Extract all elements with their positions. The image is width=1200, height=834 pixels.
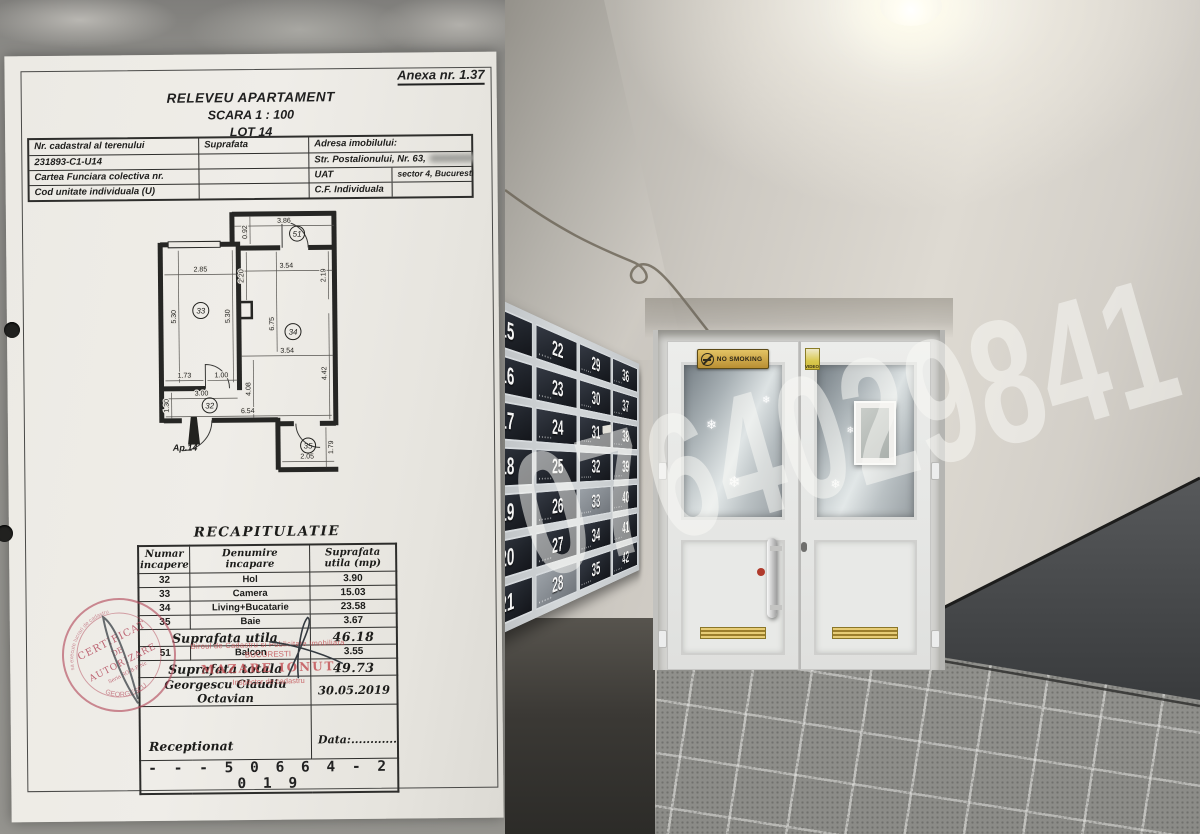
entrance-door: ❄ ❄ ❄ NO SMOKING ❄ ❄ VIDEO [653,330,945,670]
room-number-34: 34 [288,328,298,337]
document-scan: Anexa nr. 1.37 RELEVEU APARTAMENT SCARA … [0,0,505,834]
svg-text:5.30: 5.30 [225,309,232,323]
recap-header-area: Suprafatautila (mp) [310,544,397,572]
svg-text:3.54: 3.54 [280,263,294,270]
cod-unitate-label: Cod unitate individuala (U) [30,185,200,201]
room-number-35: 35 [304,441,314,450]
door-hinge [658,630,667,648]
svg-text:6.54: 6.54 [241,408,255,415]
wall-base-shadow [505,618,655,834]
svg-text:3.86: 3.86 [277,218,291,225]
uat-value: sector 4, Bucuresti [391,167,473,182]
window-symbol [168,241,220,247]
document-titles: RELEVEU APARTAMENT SCARA 1 : 100 LOT 14 [5,88,497,142]
door-handle [767,538,777,618]
door-glass-right: ❄ ❄ [814,362,918,520]
redacted-address [430,154,474,163]
door-hinge [931,630,940,648]
carte-funciara-label: Cartea Funciara colectiva nr. [29,170,199,186]
room-number-33: 33 [196,306,206,315]
svg-text:4.08: 4.08 [245,382,252,396]
snowflake-decal: ❄ [847,425,855,436]
surface-value [199,153,309,168]
mailbox-25: 25 [536,449,577,485]
mailbox-38: 38 [613,421,638,450]
recap-header-number: Numarincapere [138,546,190,574]
mailbox-35: 35 [579,550,610,592]
door-panel-right [814,540,918,655]
room-number-51: 51 [293,230,302,239]
address-value: Str. Postalionului, Nr. 63, [309,152,473,168]
address-label: Adresa imobilului: [309,136,473,153]
red-dot-sticker [757,568,765,576]
svg-text:2.19: 2.19 [320,268,327,282]
cf-label: C.F. Individuala [310,183,392,198]
mailbox-31: 31 [579,415,610,448]
mailbox-33: 33 [579,485,610,518]
door-hinge [931,462,940,480]
mailbox-42: 42 [613,541,638,577]
snowflake-decal: ❄ [728,473,741,491]
cadastral-label: Nr. cadastral al terenului [29,139,199,156]
mailbox-17: 17 [505,396,533,443]
mailbox-40: 40 [613,483,638,512]
snowflake-decal: ❄ [706,417,717,433]
svg-text:2.20: 2.20 [238,269,245,283]
vent-grille [700,627,766,639]
surface-label: Suprafata [199,137,309,153]
received-label: Receptionat [149,738,234,754]
mailbox-36: 36 [613,357,638,393]
date-label: Data:............ [311,704,398,759]
recap-title: RECAPITULATIE [137,523,397,541]
entrance-door-symbol [188,417,200,445]
door-leaf-left: ❄ ❄ ❄ NO SMOKING [667,341,799,670]
room-number-32: 32 [205,401,215,410]
mailbox-30: 30 [579,379,610,417]
svg-text:1.30: 1.30 [164,399,171,413]
property-info-table: Nr. cadastral al terenului Suprafata Adr… [27,134,474,202]
mail-flyer [602,425,611,435]
document-scale: SCARA 1 : 100 [5,106,497,125]
svg-text:5.30: 5.30 [171,310,178,324]
uat-label: UAT [309,168,391,183]
mailbox-24: 24 [536,407,577,446]
floor-plan: 3.86 0.92 2.85 5.30 5.30 3.54 2.20 2.19 … [134,203,389,505]
registration-row: - - - 5 0 6 6 4 - 2 0 1 9 [140,758,398,794]
vent-grille [832,627,898,639]
hole-punch-top [4,322,20,338]
door-hinge [658,462,667,480]
svg-text:1.00: 1.00 [215,372,229,379]
door-leaf-right: ❄ ❄ VIDEO [799,341,932,670]
no-smoking-icon [701,353,714,366]
mailbox-18: 18 [505,446,533,489]
recap-header-name: Denumireincapare [190,544,310,573]
snowflake-decal: ❄ [831,477,841,491]
svg-text:3.54: 3.54 [280,348,294,355]
svg-text:0.92: 0.92 [242,225,249,239]
mailbox-26: 26 [536,488,577,527]
svg-text:1.79: 1.79 [328,440,335,454]
mailbox-19: 19 [505,491,533,538]
apartment-label: Ap.14 [172,443,198,453]
mailbox-41: 41 [613,512,638,545]
svg-text:2.85: 2.85 [194,266,208,273]
no-smoking-sign: NO SMOKING [697,349,769,369]
svg-text:2.05: 2.05 [300,453,314,460]
screenshot: Anexa nr. 1.37 RELEVEU APARTAMENT SCARA … [0,0,1200,834]
mailbox-23: 23 [536,365,577,409]
mailbox-37: 37 [613,389,638,422]
svg-text:4.42: 4.42 [321,366,328,380]
keyhole [801,542,807,552]
mailbox-32: 32 [579,451,610,482]
door-glass-left: ❄ ❄ ❄ [681,362,785,520]
entrance-photo: 1522293616233037172431381825323919263340… [505,0,1200,834]
snowflake-decal: ❄ [762,395,770,406]
reception-row: Receptionat Data:............ [140,704,399,760]
annex-number: Anexa nr. 1.37 [397,67,485,86]
mailbox-34: 34 [579,518,610,556]
video-surveillance-sticker: VIDEO [805,348,820,370]
svg-text:6.75: 6.75 [269,317,276,331]
svg-text:1.73: 1.73 [178,373,192,380]
mailbox-39: 39 [613,453,638,481]
framed-picture [854,401,896,465]
cadastral-number: 231893-C1-U14 [29,155,199,171]
mailbox-29: 29 [579,343,610,385]
svg-text:3.00: 3.00 [195,390,209,397]
